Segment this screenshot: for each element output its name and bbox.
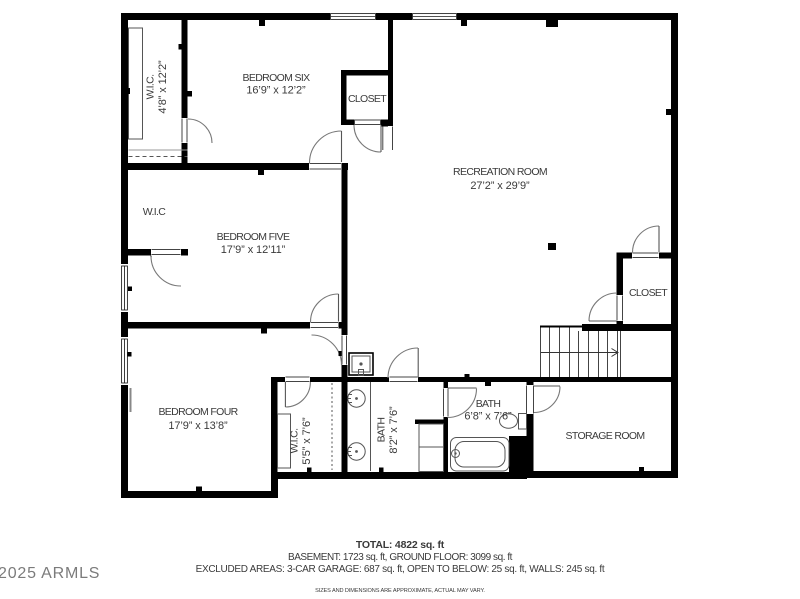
svg-text:4’8” x 12’2”: 4’8” x 12’2” — [157, 60, 169, 114]
svg-text:SIZES AND DIMENSIONS ARE APPRO: SIZES AND DIMENSIONS ARE APPROXIMATE, AC… — [315, 588, 485, 594]
svg-text:BEDROOM FIVE: BEDROOM FIVE — [217, 231, 290, 243]
svg-text:W.I.C.: W.I.C. — [289, 429, 301, 454]
svg-text:STORAGE ROOM: STORAGE ROOM — [566, 430, 645, 442]
svg-text:CLOSET: CLOSET — [348, 93, 387, 105]
svg-text:6’8” x 7’6”: 6’8” x 7’6” — [464, 411, 512, 423]
svg-text:TOTAL: 4822 sq. ft: TOTAL: 4822 sq. ft — [356, 539, 445, 551]
svg-text:BEDROOM FOUR: BEDROOM FOUR — [158, 406, 238, 418]
svg-text:EXCLUDED AREAS: 3-CAR GARAGE:: EXCLUDED AREAS: 3-CAR GARAGE: 687 sq. ft… — [196, 564, 605, 575]
svg-text:W.I.C.: W.I.C. — [145, 75, 157, 100]
svg-text:BASEMENT: 1723 sq. ft, GROUND: BASEMENT: 1723 sq. ft, GROUND FLOOR: 309… — [288, 552, 513, 563]
svg-text:CLOSET: CLOSET — [629, 287, 668, 299]
svg-text:W.I.C: W.I.C — [143, 206, 166, 218]
svg-text:17’9” x 12’11”: 17’9” x 12’11” — [221, 244, 286, 256]
svg-text:RECREATION ROOM: RECREATION ROOM — [453, 166, 547, 178]
svg-text:BATH: BATH — [476, 398, 501, 410]
svg-text:BEDROOM SIX: BEDROOM SIX — [243, 72, 311, 84]
svg-text:5’5” x 7’6”: 5’5” x 7’6” — [301, 417, 313, 465]
svg-text:BATH: BATH — [376, 418, 388, 443]
svg-text:2025 ARMLS: 2025 ARMLS — [0, 565, 100, 582]
svg-text:8’2” x 7’6”: 8’2” x 7’6” — [388, 406, 400, 454]
svg-text:16’9” x 12’2”: 16’9” x 12’2” — [246, 85, 306, 97]
svg-text:27’2” x 29’9”: 27’2” x 29’9” — [470, 180, 530, 192]
svg-text:17’9” x 13’8”: 17’9” x 13’8” — [168, 420, 228, 432]
